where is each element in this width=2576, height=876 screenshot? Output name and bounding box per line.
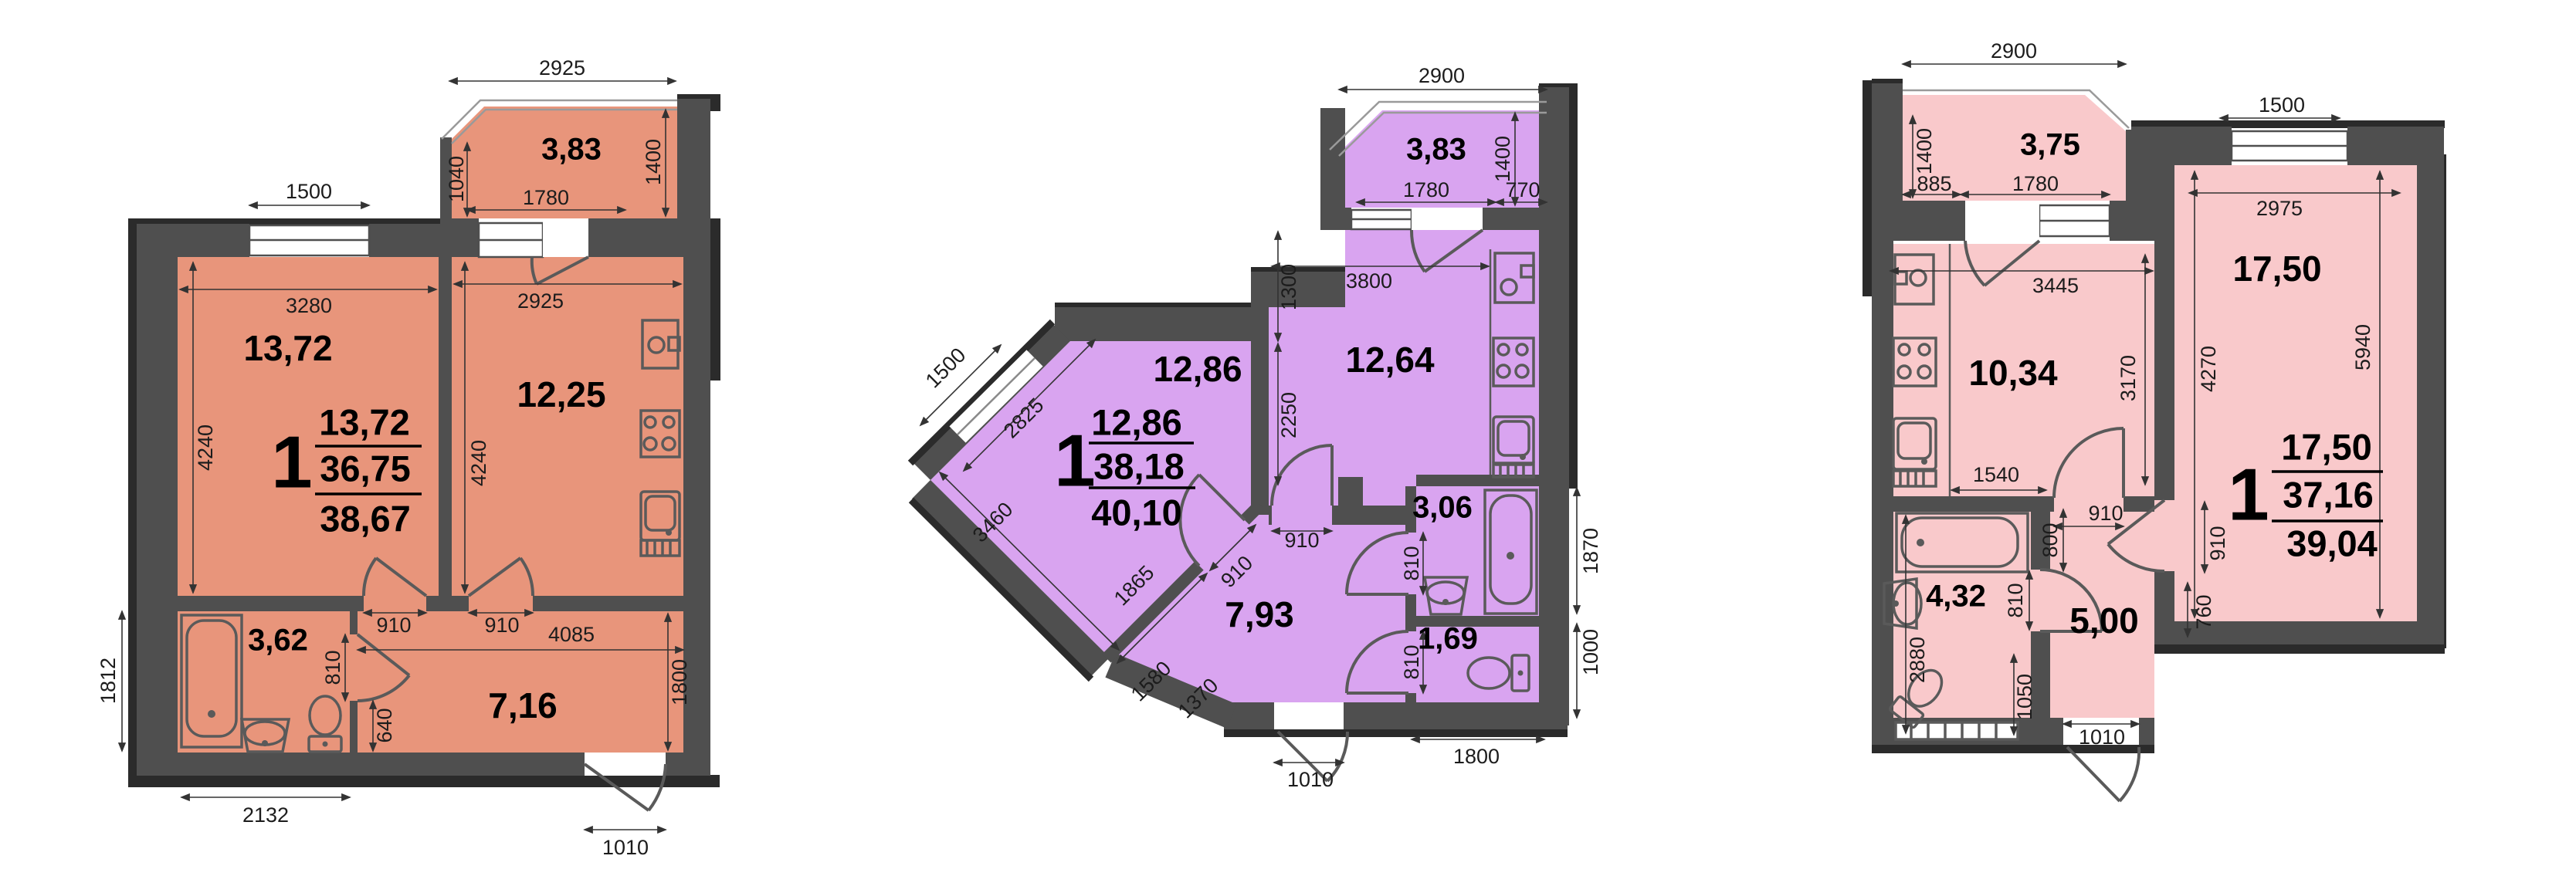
p2-dim-balcony-in-l: 1780 — [1403, 178, 1449, 201]
p1-dim-bath-door: 810 — [321, 650, 344, 685]
p3-dim-kitchen-w: 3445 — [2032, 274, 2079, 297]
p1-dim-living-door: 910 — [376, 614, 411, 637]
p3-dim-balcony-left: 1400 — [1913, 128, 1936, 174]
p2-dim-window-diag: 1500 — [921, 343, 971, 393]
p3-dim-living-h-l: 4270 — [2197, 346, 2220, 392]
p3-dim-hall-top: 800 — [2039, 523, 2062, 557]
p3-living-area-label: 17,50 — [2232, 249, 2321, 289]
p3-dim-balcony-top: 2900 — [1991, 39, 2037, 63]
p1-dim-living-h: 4240 — [194, 424, 217, 471]
p3-dim-kitchen-door: 910 — [2088, 502, 2123, 525]
p1-dim-side-left: 1812 — [97, 658, 120, 704]
p2-entry-gap — [1274, 702, 1344, 729]
p3-dim-living-door: 910 — [2206, 526, 2229, 560]
p3-dim-niche: 1050 — [2013, 674, 2036, 720]
p2-dim-balcony-top: 2900 — [1418, 64, 1465, 87]
p1-kitchen-area-label: 12,25 — [517, 374, 605, 414]
p2-dim-bath-h: 1870 — [1579, 528, 1602, 574]
p2-dim-wall-top: 1300 — [1277, 264, 1300, 310]
p1-dim-living-w: 3280 — [286, 294, 332, 317]
p1-dim-window-top: 1500 — [286, 180, 332, 203]
p1-dim-balcony-left: 1040 — [445, 156, 468, 202]
p1-dim-hall-w: 4085 — [548, 623, 595, 646]
p3-dim-living-w: 2975 — [2256, 197, 2303, 220]
p2-summary-rooms: 1 — [1054, 419, 1095, 502]
p2-dim-wc-h: 1000 — [1579, 629, 1602, 675]
p3-balcony-area-label: 3,75 — [2020, 128, 2080, 162]
p2-dim-kitchen-door: 910 — [1284, 529, 1319, 552]
p3-dim-kitchen-h: 3170 — [2117, 355, 2140, 401]
p2-hall-area-label: 7,93 — [1225, 594, 1294, 634]
p2-wc-area-label: 1,69 — [1418, 622, 1478, 656]
p2-living-area-label: 12,86 — [1153, 349, 1242, 389]
p2-bath-area-label: 3,06 — [1412, 491, 1473, 525]
p3-dim-bath-door: 810 — [2004, 583, 2027, 617]
floorplan-sheet: 2925 1040 1400 1780 1500 3280 4240 2925 … — [0, 0, 2576, 876]
p1-dim-bottom-bath: 2132 — [242, 803, 289, 827]
p1-dim-kitchen-w: 2925 — [517, 289, 564, 313]
p1-dim-kitchen-door: 910 — [484, 614, 519, 637]
p1-summary-top: 13,72 — [319, 401, 410, 442]
p1-summary-middle: 36,75 — [320, 448, 411, 489]
p1-balcony-area-label: 3,83 — [541, 133, 602, 167]
p1-bath-area-label: 3,62 — [248, 624, 308, 658]
p1-dim-niche: 640 — [373, 708, 396, 742]
p3-summary-rooms: 1 — [2228, 453, 2269, 536]
p2-dim-bath-door: 810 — [1400, 546, 1423, 580]
p1-dim-balcony-top: 2925 — [539, 56, 585, 79]
p2-dim-wall-mid: 2250 — [1277, 392, 1300, 438]
p1-living-area-label: 13,72 — [243, 328, 332, 368]
p3-summary-middle: 37,16 — [2283, 474, 2374, 515]
p2-summary-middle: 38,18 — [1093, 445, 1185, 486]
p3-dim-balcony-in-r: 1780 — [2012, 172, 2059, 195]
plan-2: 2900 1400 1780 770 3800 1300 2250 1500 2… — [910, 64, 1602, 791]
p3-dim-kitchen-b: 1540 — [1973, 463, 2019, 486]
p2-dim-balcony-in-r: 770 — [1505, 178, 1540, 201]
p3-floor-left — [1893, 244, 2154, 718]
p1-hall-area-label: 7,16 — [488, 685, 558, 725]
p1-balcony-door-gap — [543, 218, 588, 257]
p2-kitchen-area-label: 12,64 — [1345, 340, 1435, 380]
p3-radiator-icon — [1896, 722, 2018, 739]
p1-summary-bottom: 38,67 — [320, 498, 411, 539]
p3-dim-living-h-r: 5940 — [2351, 324, 2374, 370]
p2-summary-top: 12,86 — [1091, 401, 1182, 442]
floorplans-svg: 2925 1040 1400 1780 1500 3280 4240 2925 … — [0, 0, 2576, 876]
p2-summary-bottom: 40,10 — [1091, 492, 1182, 533]
p3-summary-bottom: 39,04 — [2286, 523, 2378, 563]
p3-bath-area-label: 4,32 — [1926, 580, 1986, 614]
p1-dim-balcony-inner: 1780 — [523, 186, 569, 209]
p2-dim-entry: 1010 — [1287, 768, 1334, 791]
p3-hall-area-label: 5,00 — [2069, 600, 2139, 641]
p3-dim-stub: 760 — [2192, 594, 2215, 629]
p1-dim-balcony-right: 1400 — [642, 139, 665, 185]
p1-dim-kitchen-h: 4240 — [467, 440, 490, 486]
p1-summary-rooms: 1 — [271, 421, 312, 503]
p3-dim-balcony-in-l: 885 — [1917, 172, 1951, 195]
p3-entry-door — [2067, 747, 2139, 801]
p3-balcony-door-gap — [1965, 201, 2039, 241]
p2-dim-kitchen-w: 3800 — [1346, 269, 1392, 293]
p3-dim-entry: 1010 — [2079, 725, 2125, 749]
p3-kitchen-area-label: 10,34 — [1968, 353, 2058, 393]
p2-dim-bottom: 1800 — [1453, 745, 1500, 768]
plan-1: 2925 1040 1400 1780 1500 3280 4240 2925 … — [97, 56, 720, 859]
p1-dim-hall-h: 1800 — [668, 659, 691, 705]
p2-balcony-door-gap — [1412, 208, 1483, 230]
p3-door-opening-floor — [2154, 500, 2174, 571]
p2-balcony-area-label: 3,83 — [1406, 133, 1466, 167]
p3-dim-window-top: 1500 — [2259, 93, 2305, 117]
p1-dim-entry: 1010 — [602, 836, 649, 859]
p3-dim-bath-h: 2880 — [1906, 637, 1929, 683]
plan-3: 2900 1400 885 1780 1500 2975 4270 5940 3… — [1863, 39, 2446, 801]
p3-summary-top: 17,50 — [2281, 426, 2372, 467]
p2-dim-balcony-right: 1400 — [1491, 136, 1514, 182]
